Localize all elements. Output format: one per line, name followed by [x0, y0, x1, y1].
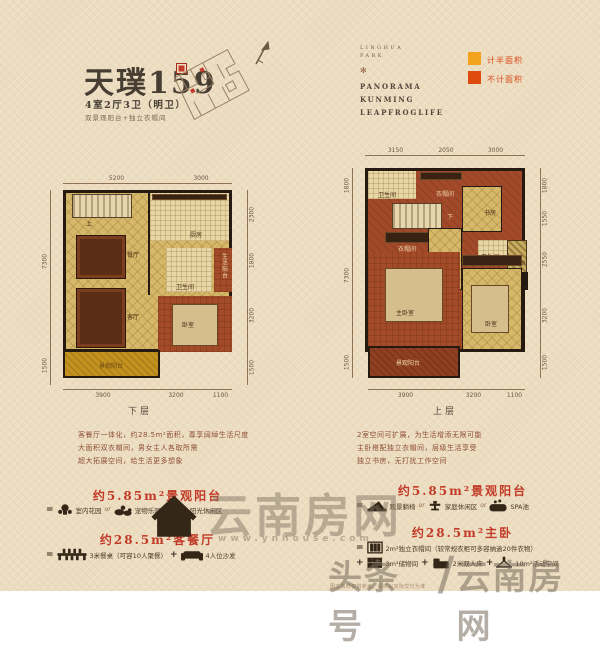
plan2-bedroom-wardrobe	[462, 255, 522, 266]
legend-swatch-not-counted	[468, 71, 481, 84]
plan2-dim-top-3: 3000	[466, 147, 525, 154]
plan1-living-set	[76, 288, 126, 348]
plan1-bedroom-label: 卧室	[182, 320, 194, 329]
equals-sign: =	[356, 501, 364, 511]
pets-icon	[114, 504, 132, 516]
or-separator: or	[164, 506, 170, 513]
plan1-dim-right-1: 2300	[249, 200, 256, 230]
plan2-master-label: 主卧室	[396, 308, 414, 317]
plan2-bath1-label: 卫生间	[378, 190, 396, 199]
plus-sign: +	[421, 558, 429, 568]
coffee-table-icon	[428, 499, 442, 512]
wardrobe-icon	[367, 541, 383, 554]
or-separator: or	[419, 502, 425, 509]
plan1-kitchen-label: 厨房	[190, 230, 202, 239]
right-feature-heading-master: 约28.5m²主卧	[370, 524, 555, 541]
plan2-bedroom-label: 卧室	[485, 319, 497, 328]
plan1-wall	[148, 190, 150, 295]
plan1-dim-left-2: 1500	[42, 351, 49, 381]
legend-label-not-counted: 不计面积	[487, 74, 523, 85]
left-feature-row-balcony: = 室内花园 or 宠物乐园 or 阳光休闲区	[46, 503, 222, 516]
plan2-master-room: 主卧室	[368, 252, 460, 348]
plan2-dim-bottom-2: 3200	[443, 392, 504, 399]
plan2-dim-bottom-3: 1100	[504, 392, 525, 399]
right-feature-row-balcony: = 观景躺椅 or 家庭休闲区 or SPA池	[356, 499, 529, 512]
lounge-chair-icon	[367, 499, 387, 512]
lower-description-line2: 大面积双衣帽间，男女主人各取所需	[78, 442, 198, 455]
right-feature-space: 10m²活动空间	[515, 558, 558, 568]
plan1-living-label: 客厅	[127, 312, 139, 321]
equals-sign: =	[356, 543, 364, 553]
indoor-garden-icon	[57, 503, 73, 516]
plan1-dim-bottom-2: 3200	[143, 392, 209, 399]
plan2-view-balcony: 景观阳台	[368, 346, 460, 378]
right-feature-bed: 2米双人床	[453, 558, 483, 568]
plan2-stair	[392, 203, 442, 229]
left-feature-heading-living: 约28.5m²客餐厅	[60, 531, 255, 548]
right-feature-row-cloak: = 2m²独立衣帽间（较常规衣柜可多容纳逾20件衣物）	[356, 541, 537, 554]
plan1-dining-label: 餐厅	[127, 250, 139, 259]
plan2-dim-right-4: 3200	[542, 301, 549, 331]
brand-small-line1: LINGHUA	[360, 45, 403, 51]
plan1-dim-line-top	[63, 183, 232, 184]
plan1-dim-right-2: 1800	[249, 246, 256, 276]
upper-description-line1: 2室空间可扩展，为生活增添无限可能	[357, 429, 482, 442]
plan1-dim-line-bottom	[63, 389, 232, 390]
plan2-dim-left-1: 1800	[344, 171, 351, 201]
plan2-dim-right-3: 2550	[542, 245, 549, 275]
spa-tub-icon	[489, 499, 507, 512]
upper-description-line2: 主卧搭配独立衣帽间，层级生活享受	[357, 442, 477, 455]
left-feature-row-living: = 3米餐桌（可容10人聚餐） + 4人位沙发	[46, 548, 236, 561]
brand-line-2: KUNMING	[360, 95, 414, 104]
plan2-dim-left-2: 7300	[344, 261, 351, 291]
left-feature-item2: 宠物乐园	[135, 505, 161, 515]
equals-sign: =	[46, 505, 54, 515]
plan1-dim-left-1: 7300	[42, 247, 49, 277]
plan2-dim-line-left	[352, 168, 353, 378]
plan1-dim-top-2: 3000	[170, 175, 232, 182]
bed-icon	[432, 557, 450, 569]
upper-description-line3: 独立书房，无打扰工作空间	[357, 455, 447, 468]
right-feature-storage: 3m²储物间	[386, 558, 419, 568]
plan1-dim-bottom-1: 3900	[63, 392, 143, 399]
plan2-floor-label: 上层	[405, 404, 485, 417]
sofa-icon	[181, 548, 203, 561]
equals-sign: =	[46, 550, 54, 560]
left-feature-heading-balcony: 约5.85m²景观阳台	[60, 487, 255, 504]
brand-small-line2: PARK	[360, 53, 384, 59]
legend-label-half-counted: 计半面积	[487, 55, 523, 66]
plan2-cloak1-cabinets	[420, 172, 462, 180]
plan1-dim-right-4: 1500	[249, 353, 256, 383]
plus-sign: +	[356, 558, 364, 568]
plan1-kitchen-counter	[152, 194, 227, 200]
lower-description-line3: 超大拓展空间，给生活更多想象	[78, 455, 183, 468]
plan2-dim-line-bottom	[368, 389, 525, 390]
plan2-dim-right-2: 1550	[542, 204, 549, 234]
brand-line-3: LEAPFROGLIFE	[360, 108, 444, 117]
plan1-dim-bottom-3: 1100	[209, 392, 232, 399]
right-feature-row-extras: + 3m²储物间 + 2米双人床 + 10m²活动空间	[356, 556, 559, 569]
right-feature-item3: SPA池	[510, 501, 529, 511]
plan1-bath-label: 卫生间	[176, 282, 194, 291]
plan1-dim-line-left	[50, 190, 51, 385]
plan2-dim-right-1: 1800	[542, 171, 549, 201]
plan1-floor-label: 下层	[100, 404, 180, 417]
right-feature-heading-balcony: 约5.85m²景观阳台	[370, 482, 555, 499]
key-plan	[168, 36, 278, 138]
plan1-service-balcony: 生活阳台	[214, 248, 232, 292]
left-feature-sofa: 4人位沙发	[206, 550, 236, 560]
plan2-cloak1-label: 衣帽间	[436, 189, 454, 198]
plan1-stair-label: 上	[86, 219, 92, 228]
dining-table-icon	[57, 548, 87, 561]
left-feature-item1: 室内花园	[76, 505, 102, 515]
or-separator: or	[480, 502, 486, 509]
plan1-view-balcony-label: 景观阳台	[99, 361, 123, 370]
compass-icon	[256, 42, 269, 64]
right-feature-item1: 观景躺椅	[390, 501, 416, 511]
watermark-slash: /	[438, 546, 455, 600]
plan2-study-label: 书房	[484, 208, 496, 217]
plan1-bedroom: 卧室	[158, 296, 232, 352]
plan1-dim-top-1: 5200	[63, 175, 170, 182]
plan1-dim-right-3: 3200	[249, 301, 256, 331]
or-separator: or	[105, 506, 111, 513]
tea-table-icon	[173, 503, 187, 516]
plan2-dim-bottom-1: 3900	[368, 392, 443, 399]
plan1-view-balcony: 景观阳台	[63, 350, 160, 378]
plan2-stair-label: 下	[447, 212, 453, 221]
plan2-dim-top-2: 2050	[426, 147, 466, 154]
flyer-canvas: 天璞159 4室2厅3卫（明卫） 双景观阳台+独立衣帽间 LINGHUA PAR…	[0, 0, 600, 591]
ornament-icon: ✻	[360, 66, 367, 75]
plan1-dining-set	[76, 235, 126, 279]
lower-description-line1: 客餐厅一体化，约28.5m²面积，尊享阔绰生活尺度	[78, 429, 249, 442]
plan1-service-balcony-label: 生活阳台	[220, 253, 228, 279]
plan1-bed	[172, 304, 218, 346]
plan2-bedroom-room: 卧室	[462, 268, 522, 350]
fine-print: 图文资料仅供参考，最终以实际交付为准	[330, 583, 425, 590]
plan1-stair	[72, 194, 132, 218]
plan2-dim-left-3: 1500	[344, 348, 351, 378]
storage-grid-icon	[367, 557, 383, 569]
plan2-dim-right-5: 1500	[542, 348, 549, 378]
plus-sign: +	[170, 550, 178, 560]
plan2-dim-line-top	[365, 155, 525, 156]
plus-sign: +	[486, 558, 494, 568]
left-feature-table: 3米餐桌（可容10人聚餐）	[90, 550, 167, 560]
tagline: 双景观阳台+独立衣帽间	[85, 112, 166, 122]
plan2-view-balcony-label: 景观阳台	[396, 358, 420, 367]
brand-line-1: PANORAMA	[360, 82, 422, 91]
right-feature-item2: 家庭休闲区	[445, 501, 478, 511]
hanger-icon	[496, 556, 512, 569]
right-feature-cloakroom: 2m²独立衣帽间（较常规衣柜可多容纳逾20件衣物）	[386, 543, 537, 553]
legend-swatch-half-counted	[468, 52, 481, 65]
left-feature-item3: 阳光休闲区	[190, 505, 223, 515]
plan2-dim-top-1: 3150	[365, 147, 426, 154]
